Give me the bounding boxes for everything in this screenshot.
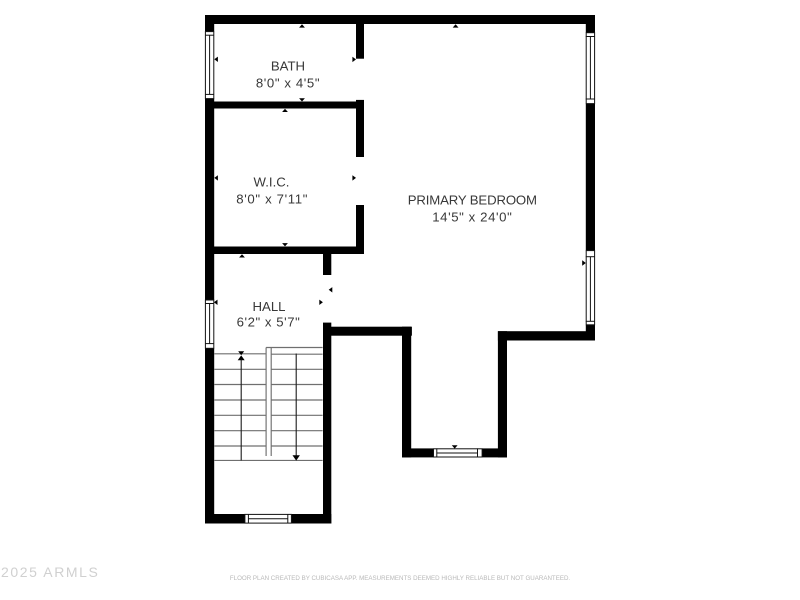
svg-text:FLOOR PLAN CREATED BY CUBICASA: FLOOR PLAN CREATED BY CUBICASA APP. MEAS… (230, 575, 571, 582)
svg-text:8'0" x 7'11": 8'0" x 7'11" (236, 191, 308, 206)
svg-text:14'5" x 24'0": 14'5" x 24'0" (432, 209, 512, 224)
svg-text:W.I.C.: W.I.C. (254, 174, 290, 189)
svg-text:BATH: BATH (271, 58, 305, 73)
svg-text:6'2" x 5'7": 6'2" x 5'7" (237, 314, 301, 329)
svg-text:8'0" x 4'5": 8'0" x 4'5" (256, 75, 320, 90)
svg-text:2025 ARMLS: 2025 ARMLS (1, 564, 100, 580)
svg-text:PRIMARY BEDROOM: PRIMARY BEDROOM (408, 192, 537, 207)
svg-text:HALL: HALL (253, 299, 286, 314)
